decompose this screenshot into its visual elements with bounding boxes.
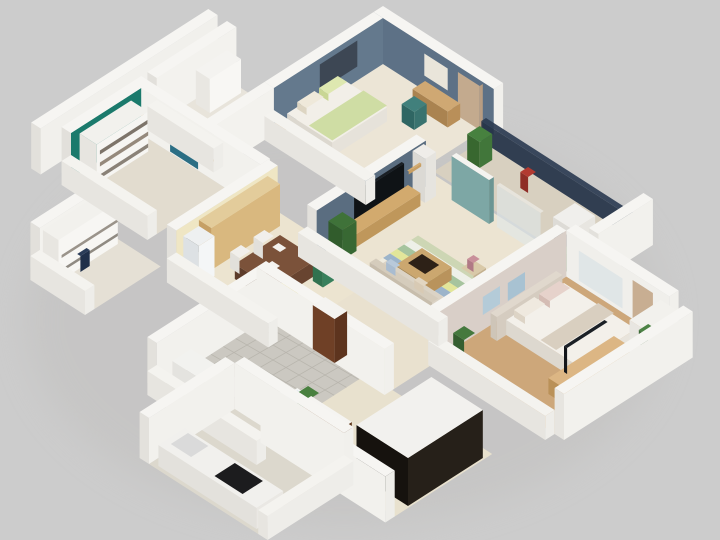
floorplan-3d-render (0, 0, 720, 540)
balcony-plant-large (467, 126, 492, 168)
floorplan-stage (0, 0, 720, 540)
